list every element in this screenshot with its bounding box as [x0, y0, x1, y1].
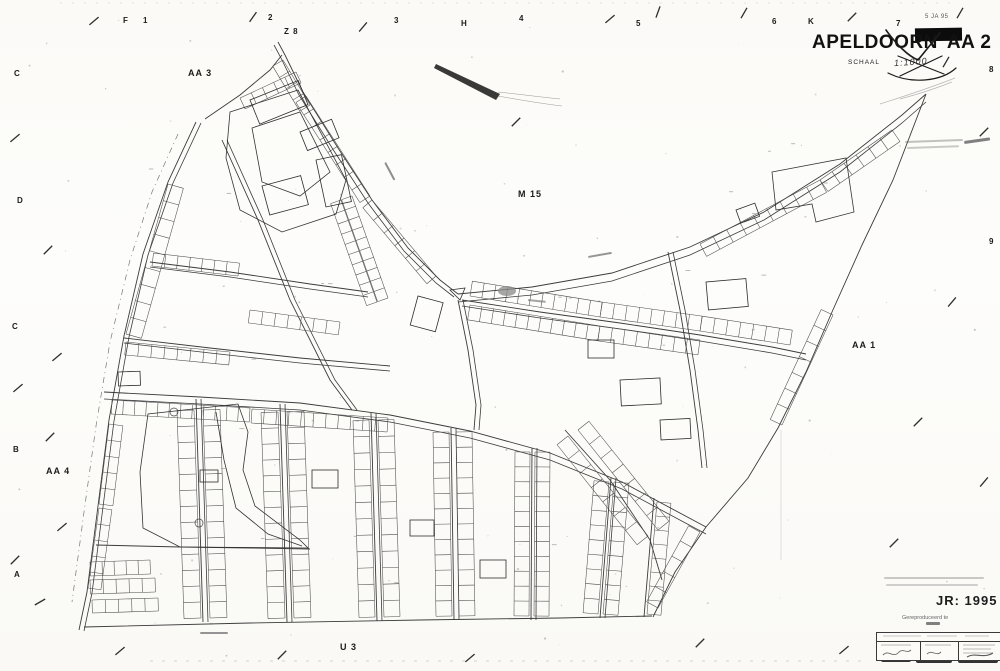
pen-cross-out: [898, 56, 944, 76]
scanned-map-sheet: F123H456K789CDCBAAA 3Z 8M 15AA 1AA 4U 3 …: [0, 0, 1000, 671]
year-reference-label: JR: 1995: [936, 593, 997, 608]
legend-table: [876, 632, 1000, 661]
pencil-scribble: [880, 78, 955, 104]
reproduction-note: Gereproduceerd te: [902, 615, 948, 621]
pen-underline: [888, 68, 956, 80]
pen-marks-overlay: [0, 0, 1000, 671]
legend-table-handwriting: [877, 633, 1000, 660]
pen-swoosh: [886, 30, 940, 60]
